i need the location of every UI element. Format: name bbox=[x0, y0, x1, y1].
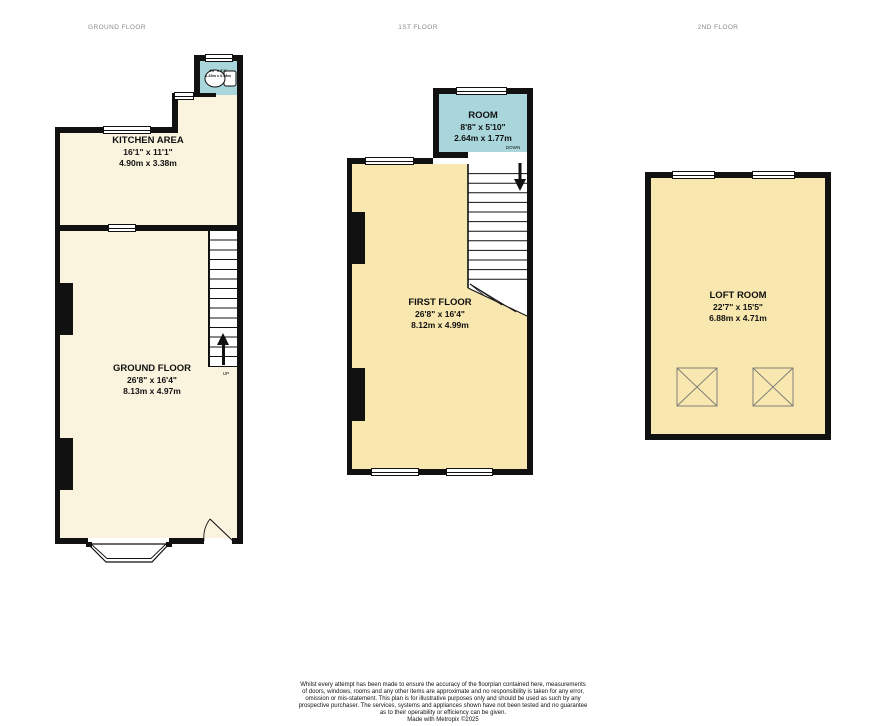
window bbox=[365, 157, 414, 165]
window bbox=[446, 468, 493, 476]
wall bbox=[347, 158, 352, 475]
first-room-label: FIRST FLOOR 26'8" x 16'4" 8.12m x 4.99m bbox=[370, 297, 510, 330]
hall-fill bbox=[178, 95, 237, 133]
ground-room-dims-ft: 26'8" x 16'4" bbox=[82, 375, 222, 386]
kitchen-name: KITCHEN AREA bbox=[78, 135, 218, 147]
ground-room-name: GROUND FLOOR bbox=[82, 363, 222, 375]
ground-room-label: GROUND FLOOR 26'8" x 16'4" 8.13m x 4.97m bbox=[82, 363, 222, 396]
first-room-name: FIRST FLOOR bbox=[370, 297, 510, 309]
kitchen-dims-ft: 16'1" x 11'1" bbox=[78, 147, 218, 158]
loft-room-label: LOFT ROOM 22'7" x 15'5" 6.88m x 4.71m bbox=[668, 290, 808, 323]
disclaimer-text: Whilst every attempt has been made to en… bbox=[263, 682, 623, 717]
window bbox=[103, 126, 151, 134]
wc-room-label: 4'0" x 3'2" 1.23m x 0.98m bbox=[196, 69, 240, 78]
first-room-dims-ft: 26'8" x 16'4" bbox=[370, 309, 510, 320]
small-room-label: ROOM 8'8" x 5'10" 2.64m x 1.77m bbox=[433, 110, 533, 143]
footer: Whilst every attempt has been made to en… bbox=[263, 682, 623, 724]
small-room-dims-ft: 8'8" x 5'10" bbox=[433, 122, 533, 133]
up-arrow-shaft bbox=[222, 344, 225, 365]
chimney-breast bbox=[55, 438, 73, 490]
window bbox=[672, 171, 715, 179]
first-stairs bbox=[464, 160, 530, 320]
credit-text: Made with Metropix ©2025 bbox=[263, 717, 623, 724]
front-door bbox=[198, 505, 243, 545]
window bbox=[371, 468, 419, 476]
stairs-down-label: DOWN bbox=[500, 145, 526, 150]
kitchen-label: KITCHEN AREA 16'1" x 11'1" 4.90m x 3.38m bbox=[78, 135, 218, 168]
small-room-name: ROOM bbox=[433, 110, 533, 122]
loft-room-dims-ft: 22'7" x 15'5" bbox=[668, 302, 808, 313]
second-floor-header: 2ND FLOOR bbox=[658, 24, 778, 31]
first-floor-header: 1ST FLOOR bbox=[358, 24, 478, 31]
first-room-dims-m: 8.12m x 4.99m bbox=[370, 320, 510, 331]
wall bbox=[527, 88, 533, 475]
wall bbox=[237, 55, 243, 544]
window bbox=[174, 92, 194, 100]
chimney-breast bbox=[347, 368, 365, 421]
window bbox=[456, 87, 507, 95]
wall bbox=[194, 93, 216, 97]
wall bbox=[433, 152, 468, 158]
internal-opening bbox=[108, 224, 136, 232]
bay-window bbox=[80, 540, 180, 570]
skylight-icon bbox=[753, 368, 793, 406]
loft-room-name: LOFT ROOM bbox=[668, 290, 808, 302]
chimney-breast bbox=[55, 283, 73, 335]
skylight-icon bbox=[677, 368, 717, 406]
ground-floor-header: GROUND FLOOR bbox=[57, 24, 177, 31]
chimney-breast bbox=[347, 212, 365, 264]
loft-room-dims-m: 6.88m x 4.71m bbox=[668, 313, 808, 324]
wall bbox=[60, 225, 237, 231]
window bbox=[752, 171, 795, 179]
skylight-icons bbox=[670, 365, 800, 411]
small-room-dims-m: 2.64m x 1.77m bbox=[433, 133, 533, 144]
kitchen-dims-m: 4.90m x 3.38m bbox=[78, 158, 218, 169]
wc-dims-m: 1.23m x 0.98m bbox=[196, 74, 240, 79]
ground-room-dims-m: 8.13m x 4.97m bbox=[82, 386, 222, 397]
window bbox=[205, 54, 233, 62]
floorplan-page: GROUND FLOOR 1ST FLOOR 2ND FLOOR UP bbox=[0, 0, 886, 726]
